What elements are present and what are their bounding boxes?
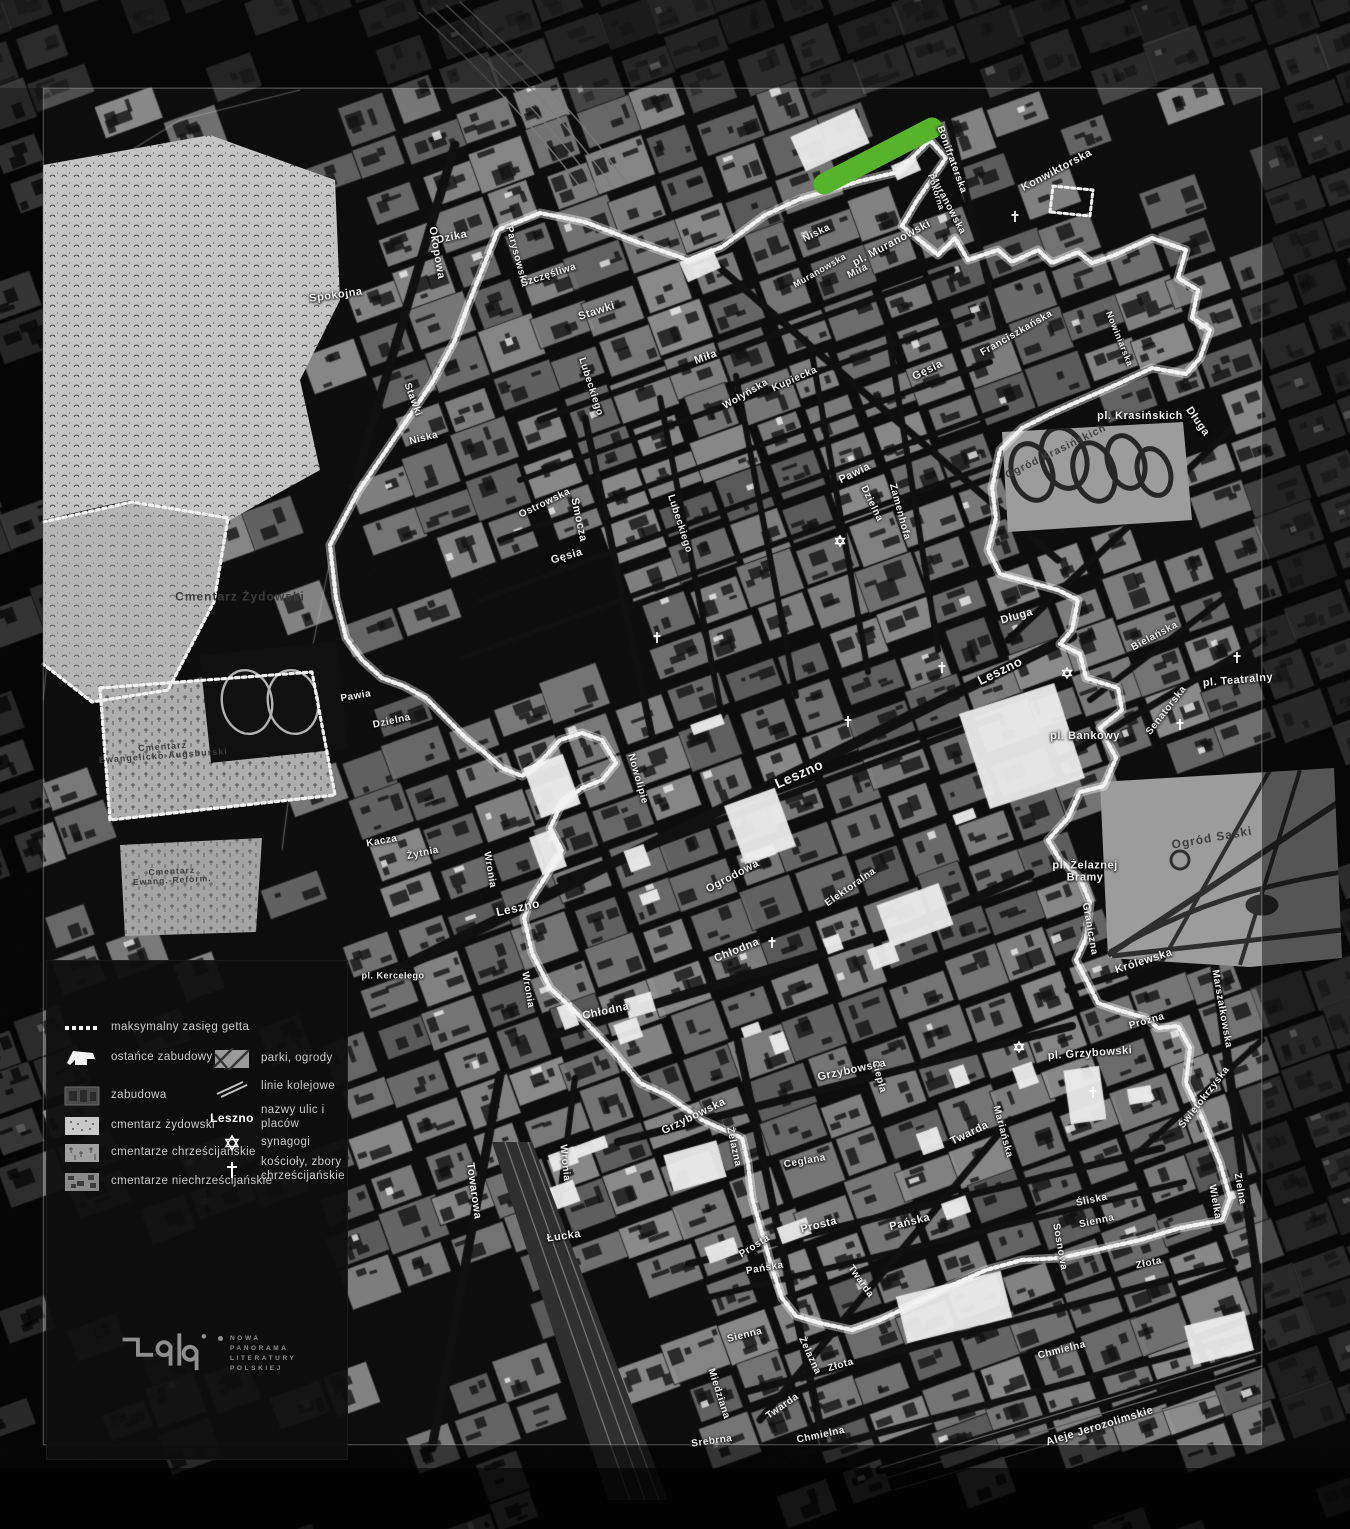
- street-label: Marszałkowska: [1209, 969, 1233, 1049]
- legend-item-church-cross: kościoły, zbory chrześcijańskie: [213, 1156, 345, 1184]
- street-label: Wronia: [519, 971, 536, 1009]
- legend-label: nazwy ulic i placów: [261, 1104, 347, 1132]
- legend-label: ostańce zabudowy: [111, 1051, 213, 1065]
- street-label: Królewska: [1114, 947, 1174, 976]
- street-label: Pawia: [837, 461, 872, 486]
- street-label: Kacza: [366, 834, 399, 850]
- street-label: Żelazna: [796, 1336, 823, 1377]
- area-label: Cmentarz Ewang.-Reform.: [132, 865, 212, 887]
- logo-text: NOWA PANORAMA LITERATURY POLSKIEJ: [230, 1334, 296, 1374]
- legend-item-parks: parki, ogrody: [213, 1048, 333, 1070]
- ghetto-boundary-icon: [63, 1017, 101, 1039]
- street-label: Ogrodowa: [705, 858, 762, 896]
- street-label: Muranowska: [792, 252, 848, 290]
- street-label: Senatorska: [1145, 685, 1190, 738]
- street-label: Pańska: [745, 1261, 784, 1278]
- street-label: Sienna: [1078, 1213, 1115, 1231]
- place-label: pl. Krasińskich: [1097, 411, 1183, 423]
- street-label: Gęsia: [911, 359, 945, 384]
- logo-bullet: [218, 1336, 223, 1341]
- street-label: Ostrowska: [518, 487, 573, 521]
- legend-label: zabudowa: [111, 1089, 167, 1103]
- street-label: Leszno: [773, 757, 826, 791]
- street-label: Lubeckiego: [576, 357, 605, 418]
- place-label: pl. Grzybowski: [1047, 1045, 1132, 1062]
- street-label: Pawia: [340, 689, 372, 705]
- street-label: Franciszkańska: [979, 309, 1055, 359]
- street-label: Smocza: [568, 497, 589, 543]
- street-name-sample-icon: Leszno: [213, 1107, 251, 1129]
- street-label: Stawki: [577, 301, 617, 324]
- street-label: Miła: [693, 349, 719, 368]
- area-label: Cmentarz Żydowski: [175, 591, 305, 604]
- legend-label: kościoły, zbory chrześcijańskie: [261, 1156, 345, 1184]
- legend-item-street-name-sample: Lesznonazwy ulic i placów: [213, 1104, 347, 1132]
- street-label: Nowiniarska: [1104, 310, 1135, 368]
- street-label: Bielańska: [1130, 620, 1180, 653]
- street-label: Aleje Jerozolimskie: [1045, 1405, 1155, 1449]
- street-label: Chmielna: [796, 1426, 846, 1446]
- street-label: Wronia: [481, 851, 498, 889]
- street-label: Chłodna: [713, 937, 761, 965]
- street-label: Nowolipie: [625, 753, 649, 806]
- publisher-logo: NOWA PANORAMA LITERATURY POLSKIEJ: [118, 1320, 378, 1400]
- street-label: Długa: [1183, 405, 1211, 439]
- jewish-cemetery-icon: [63, 1115, 101, 1137]
- street-label: Sosnowa: [1050, 1223, 1069, 1272]
- street-label: Twarda: [765, 1392, 802, 1422]
- area-label: Ogród Saski: [1171, 825, 1254, 852]
- street-label: Spokojna: [309, 287, 364, 306]
- street-label: Próżna: [1128, 1012, 1166, 1032]
- street-label: Szczęśliwa: [520, 262, 578, 290]
- street-label: Leszno: [495, 897, 541, 919]
- church-cross-icon: [213, 1159, 251, 1181]
- synagogue-star-icon: [213, 1132, 251, 1154]
- place-label: pl. Kercelego: [361, 971, 424, 980]
- place-label: pl. Muranowski: [851, 219, 933, 270]
- street-label: Ceglana: [783, 1153, 827, 1171]
- legend-label: linie kolejowe: [261, 1080, 335, 1094]
- street-label: Łucka: [546, 1229, 582, 1245]
- street-label: Niska: [409, 430, 440, 447]
- railways-icon: [213, 1076, 251, 1098]
- street-label: Dzielna: [858, 484, 884, 523]
- place-label: pl. Teatralny: [1202, 672, 1273, 690]
- area-label: Ogród Krasińskich: [1004, 423, 1109, 482]
- street-label: Chmielna: [1037, 1340, 1087, 1362]
- street-label: Grzybowska: [660, 1097, 728, 1138]
- street-label: Zamenhofa: [886, 483, 911, 542]
- place-label: pl. Żelaznej Bramy: [1052, 860, 1117, 883]
- area-label: Cmentarz Ewangelicko-Augsburski: [98, 738, 228, 766]
- street-label: Żelazna: [724, 1126, 743, 1167]
- logo-line: POLSKIEJ: [230, 1364, 296, 1374]
- street-label: Prosta: [738, 1234, 773, 1261]
- legend-label: maksymalny zasięg getta: [111, 1021, 249, 1035]
- map-viewport[interactable]: DzikaOkopowaSpokojnaParysowskaSzczęśliwa…: [0, 0, 1350, 1529]
- street-label: Stawki: [401, 382, 423, 418]
- street-label: Twarda: [949, 1120, 991, 1148]
- street-label: Leszno: [976, 654, 1025, 687]
- legend-item-railways: linie kolejowe: [213, 1076, 335, 1098]
- street-label: Niska: [802, 223, 833, 245]
- street-label: Dzielna: [372, 713, 412, 731]
- legend-item-buildings: zabudowa: [63, 1085, 167, 1107]
- street-label: Twarda: [845, 1264, 875, 1301]
- street-label: Wronia: [557, 1144, 571, 1182]
- legend-item-ghetto-boundary: maksymalny zasięg getta: [63, 1017, 249, 1039]
- logo-line: NOWA: [230, 1334, 296, 1344]
- legend-label: synagogi: [261, 1136, 310, 1150]
- nplp-logo-icon: [118, 1324, 210, 1378]
- street-label: Żytnia: [406, 845, 440, 862]
- street-label: Mariańska: [990, 1105, 1014, 1159]
- christian-cemeteries-icon: [63, 1142, 101, 1164]
- legend-label: parki, ogrody: [261, 1052, 333, 1066]
- street-label: Świętokrzyska: [1178, 1065, 1233, 1131]
- street-label: Srebrna: [691, 1434, 733, 1450]
- surviving-buildings-icon: [63, 1047, 101, 1069]
- buildings-icon: [63, 1085, 101, 1107]
- street-label: Złota: [1135, 1256, 1163, 1272]
- legend-item-surviving-buildings: ostańce zabudowy: [63, 1047, 213, 1069]
- street-label: Pańska: [888, 1212, 931, 1233]
- street-name-sample: Leszno: [210, 1111, 254, 1125]
- street-label: Graniczna: [1079, 902, 1099, 956]
- street-label: Prosta: [800, 1216, 839, 1236]
- legend-item-synagogue-star: synagogi: [213, 1132, 310, 1154]
- street-label: Śliska: [1075, 1193, 1108, 1210]
- place-label: pl. Bankowy: [1050, 731, 1120, 743]
- street-label: Sienna: [726, 1327, 763, 1346]
- street-label: Wołyńska: [722, 378, 771, 412]
- logo-line: LITERATURY: [230, 1354, 296, 1364]
- street-label: Kupiecka: [771, 365, 820, 394]
- street-label: Towarowa: [463, 1162, 482, 1220]
- street-label: Lubeckiego: [665, 494, 694, 555]
- street-label: Zielna: [1231, 1172, 1247, 1205]
- street-label: Chłodna: [582, 1001, 631, 1022]
- legend-item-jewish-cemetery: cmentarz żydowski: [63, 1115, 215, 1137]
- logo-line: PANORAMA: [230, 1344, 296, 1354]
- street-label: Gęsia: [550, 547, 584, 567]
- parks-icon: [213, 1048, 251, 1070]
- street-label: Miedziana: [705, 1368, 731, 1421]
- street-label: Konwiktorska: [1020, 148, 1094, 195]
- street-label: Wielka: [1206, 1184, 1222, 1220]
- legend-label: cmentarz żydowski: [111, 1119, 215, 1133]
- street-label: Długa: [1000, 607, 1035, 627]
- street-label: Złota: [827, 1357, 855, 1374]
- street-label: Elektoralna: [824, 867, 879, 910]
- non-christian-cemeteries-icon: [63, 1171, 101, 1193]
